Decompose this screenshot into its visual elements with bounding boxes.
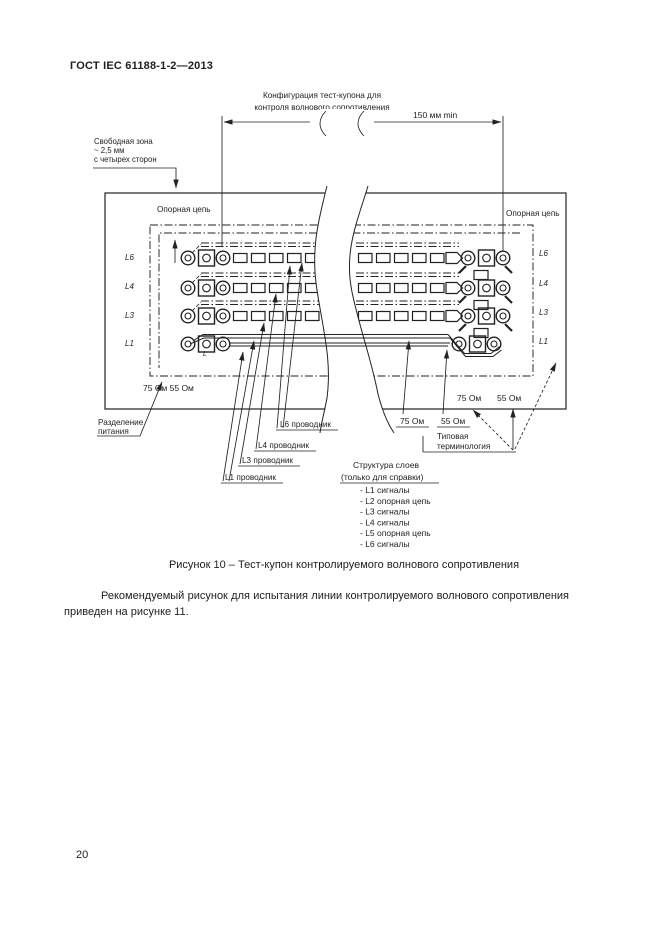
- ohm-75-label: 75 Ом: [400, 416, 424, 426]
- legend-item: - L3 сигналы: [360, 507, 410, 517]
- dimension-line: [222, 109, 503, 251]
- pad-marker-label: L: [203, 351, 207, 358]
- impedance-inline-left: 75 Ом 55 Ом: [143, 383, 194, 393]
- layer-label: L4: [125, 282, 134, 291]
- power-separation-line1: Разделение: [98, 418, 144, 427]
- free-zone-note: Свободная зона ~ 2,5 мм с четырех сторон: [93, 137, 176, 188]
- layer-labels-right: L6 L4 L3 L1: [539, 249, 548, 346]
- layer-label: L3: [125, 311, 134, 320]
- conductor-label-l1: L1 проводник: [225, 473, 276, 482]
- figure-10-diagram: Конфигурация тест-купона для контроля во…: [0, 0, 661, 936]
- conductor-label-l3: L3 проводник: [242, 456, 293, 465]
- ohm-callouts: 75 Ом 55 Ом: [396, 341, 470, 427]
- reference-circuit-left-label: Опорная цепь: [157, 205, 211, 214]
- layer-label: L1: [539, 337, 548, 346]
- power-separation-line2: питания: [98, 427, 129, 436]
- impedance-inline-right-55: 55 Ом: [497, 393, 521, 403]
- legend-item: - L1 сигналы: [360, 485, 410, 495]
- board-break: [315, 184, 394, 434]
- impedance-inline-right-75: 75 Ом: [457, 393, 481, 403]
- legend-subtitle: (только для справки): [341, 472, 424, 482]
- conductor-label-l6: L6 проводник: [280, 420, 331, 429]
- dimension-label: 150 мм min: [413, 110, 458, 120]
- document-page: ГОСТ IEC 61188-1-2—2013: [0, 0, 661, 936]
- layer-labels-left: L6 L4 L3 L1: [125, 253, 134, 348]
- reference-circuit-right-label: Опорная цепь: [506, 209, 560, 218]
- ohm-55-label: 55 Ом: [441, 416, 465, 426]
- conductor-label-l4: L4 проводник: [258, 441, 309, 450]
- layer-label: L6: [539, 249, 548, 258]
- page-number: 20: [76, 849, 88, 861]
- legend-item: - L4 сигналы: [360, 517, 410, 527]
- free-zone-line2: ~ 2,5 мм: [94, 146, 124, 155]
- figure-caption: Рисунок 10 – Тест-купон контролируемого …: [27, 559, 661, 571]
- terminology-line1: Типовая: [437, 432, 468, 441]
- body-paragraph: Рекомендуемый рисунок для испытания лини…: [64, 589, 569, 620]
- layer-label: L6: [125, 253, 134, 262]
- layer-label: L4: [539, 279, 548, 288]
- terminology-line2: терминология: [437, 442, 490, 451]
- layer-label: L3: [539, 308, 548, 317]
- legend-title: Структура слоев: [353, 460, 419, 470]
- legend-item: - L2 опорная цепь: [360, 496, 431, 506]
- layer-structure-legend: Структура слоев (только для справки) - L…: [340, 460, 439, 549]
- layer-label: L1: [125, 339, 134, 348]
- free-zone-line3: с четырех сторон: [94, 155, 157, 164]
- free-zone-line1: Свободная зона: [94, 137, 153, 146]
- config-label-line1: Конфигурация тест-купона для: [263, 91, 381, 100]
- legend-item: - L6 сигналы: [360, 539, 410, 549]
- legend-item: - L5 опорная цепь: [360, 528, 431, 538]
